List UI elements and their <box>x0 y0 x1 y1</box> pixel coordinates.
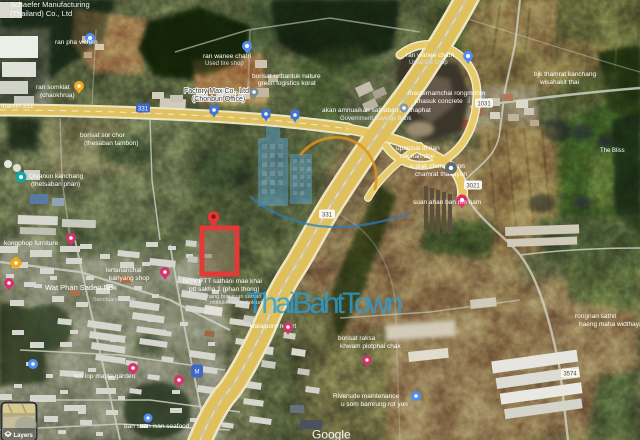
svg-text:ton lop maple garden: ton lop maple garden <box>74 373 135 380</box>
svg-text:1031: 1031 <box>477 102 491 108</box>
svg-text:Used tire shop: Used tire shop <box>409 60 448 66</box>
svg-text:Used tire shop: Used tire shop <box>205 61 244 67</box>
svg-text:(chaokhrua): (chaokhrua) <box>40 92 75 99</box>
svg-text:331: 331 <box>322 213 333 219</box>
svg-text:Riverside maintenance: Riverside maintenance <box>333 393 400 400</box>
svg-text:thanon 331: thanon 331 <box>1 103 34 110</box>
svg-text:green logistics korat: green logistics korat <box>258 80 316 87</box>
svg-text:(thetsaban phan): (thetsaban phan) <box>31 181 80 188</box>
svg-text:suan ahan ban rim nam: suan ahan ban rim nam <box>413 199 481 206</box>
svg-text:Google: Google <box>312 428 351 440</box>
svg-text:haeng maha widthayalai: haeng maha widthayalai <box>579 321 640 328</box>
svg-text:bjk thamrat kanchang: bjk thamrat kanchang <box>534 71 597 78</box>
svg-text:borisat raksa: borisat raksa <box>338 335 376 342</box>
svg-text:ban suan isan seafood: ban suan isan seafood <box>124 423 190 430</box>
svg-text:Factory Max Co., Ltd: Factory Max Co., Ltd <box>184 88 249 95</box>
svg-text:rongrian sathit: rongrian sathit <box>575 313 616 320</box>
svg-text:wisahakit thai: wisahakit thai <box>539 79 579 86</box>
svg-text:331: 331 <box>138 107 149 113</box>
svg-text:phasuk concrete: phasuk concrete <box>415 98 463 105</box>
svg-text:ran pha vichen: ran pha vichen <box>55 39 98 46</box>
svg-text:3574: 3574 <box>563 372 577 378</box>
svg-text:chamrat thanayon: chamrat thanayon <box>415 171 467 178</box>
svg-text:Layers: Layers <box>14 433 34 439</box>
svg-text:borisat sor chor: borisat sor chor <box>80 132 126 139</box>
svg-text:Qiyanun kanchang: Qiyanun kanchang <box>29 173 84 180</box>
svg-text:NGV PTT sathani mae khai: NGV PTT sathani mae khai <box>183 278 262 285</box>
svg-text:kongphop furniture: kongphop furniture <box>4 240 59 247</box>
svg-text:Wat Phan Saden Nok: Wat Phan Saden Nok <box>45 283 117 292</box>
svg-text:Government Savings Bank: Government Savings Bank <box>340 116 412 122</box>
svg-text:lertananchai: lertananchai <box>106 267 141 274</box>
svg-text:borisat rotbantuk nature: borisat rotbantuk nature <box>252 73 321 80</box>
svg-text:The Bliss: The Bliss <box>600 148 625 154</box>
svg-text:kanyang shop: kanyang shop <box>109 275 150 282</box>
svg-text:akan amnuaikan sathaban ratcha: akan amnuaikan sathaban ratchaphat <box>322 107 431 114</box>
svg-text:(thesaban tambon): (thesaban tambon) <box>84 140 139 147</box>
svg-text:masternamchai rongmohin: masternamchai rongmohin <box>408 90 485 97</box>
svg-text:u som bamrung rot yon: u som bamrung rot yon <box>341 401 408 408</box>
svg-text:M: M <box>195 369 200 375</box>
svg-text:(Thailand) Co., Ltd: (Thailand) Co., Ltd <box>10 9 72 18</box>
svg-text:u piak charoen yon: u piak charoen yon <box>410 163 465 170</box>
svg-text:ThaiBahtTown: ThaiBahtTown <box>246 287 403 320</box>
svg-text:ran somkiat: ran somkiat <box>36 84 70 91</box>
svg-text:ran wanee chatri: ran wanee chatri <box>406 52 454 59</box>
svg-text:ran wanee chatri: ran wanee chatri <box>203 53 251 60</box>
svg-text:(Chonburi Office): (Chonburi Office) <box>192 96 245 103</box>
svg-text:rak rian dee: rak rian dee <box>400 153 435 160</box>
svg-text:Sanctuary temple: Sanctuary temple <box>93 297 136 303</box>
svg-text:upanisai di rian: upanisai di rian <box>396 145 440 152</box>
svg-text:Schaefer Manufacturing: Schaefer Manufacturing <box>10 0 90 9</box>
svg-text:3021: 3021 <box>466 184 480 190</box>
svg-text:khwam plotphai chak: khwam plotphai chak <box>340 343 401 350</box>
